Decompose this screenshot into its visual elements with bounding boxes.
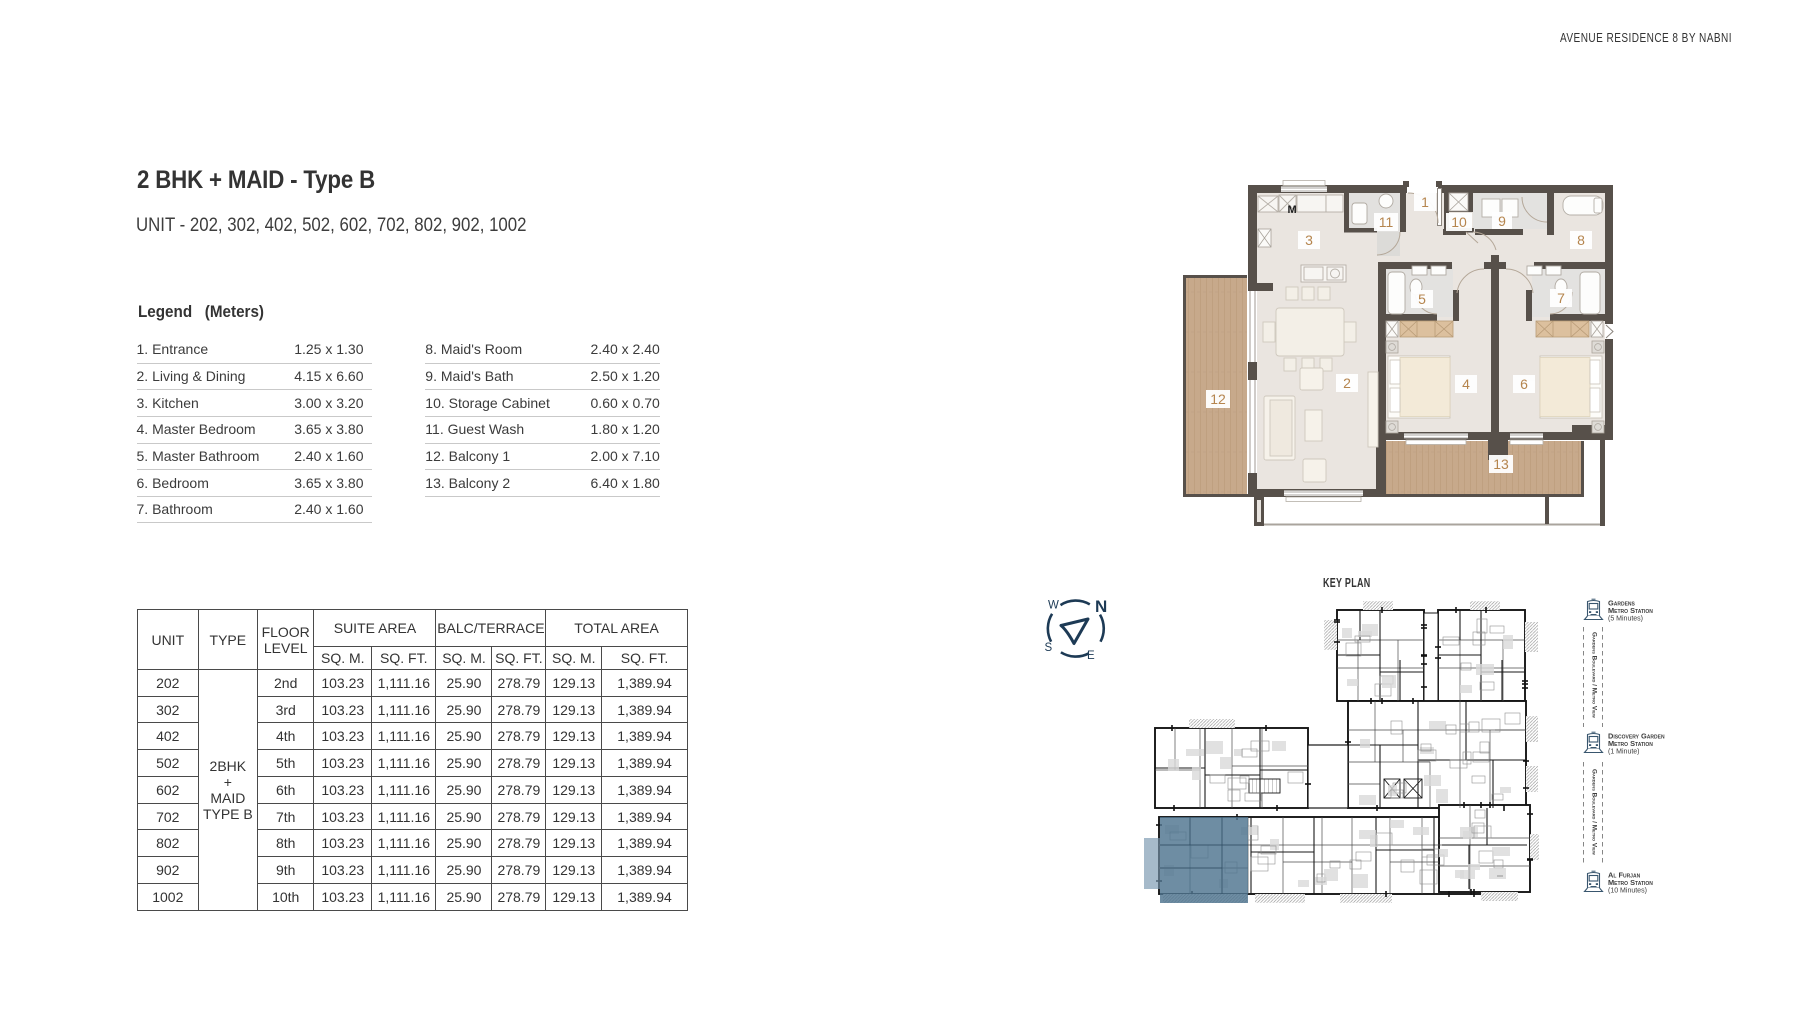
- svg-text:W: W: [1048, 600, 1059, 612]
- svg-text:11: 11: [1379, 214, 1394, 230]
- svg-text:Gardens Boulevard / Metro View: Gardens Boulevard / Metro View: [1591, 769, 1598, 855]
- svg-text:6: 6: [1520, 376, 1528, 392]
- svg-text:2: 2: [1343, 375, 1351, 391]
- svg-text:7: 7: [1557, 290, 1565, 306]
- svg-text:13: 13: [1493, 456, 1509, 472]
- svg-text:N: N: [1095, 597, 1107, 616]
- svg-text:(5 Minutes): (5 Minutes): [1608, 616, 1643, 623]
- svg-text:5: 5: [1418, 291, 1426, 307]
- svg-text:4: 4: [1462, 376, 1470, 392]
- svg-text:10: 10: [1451, 214, 1467, 230]
- svg-text:Metro Station: Metro Station: [1608, 739, 1653, 748]
- svg-text:Gardens Boulevard / Metro View: Gardens Boulevard / Metro View: [1591, 632, 1598, 718]
- svg-text:1: 1: [1421, 194, 1429, 210]
- svg-text:S: S: [1045, 642, 1053, 654]
- svg-text:12: 12: [1210, 391, 1226, 407]
- svg-text:(10 Minutes): (10 Minutes): [1608, 888, 1647, 895]
- svg-text:Metro Station: Metro Station: [1608, 606, 1653, 615]
- svg-text:3: 3: [1305, 232, 1313, 248]
- svg-text:9: 9: [1498, 213, 1506, 229]
- svg-text:M: M: [1288, 204, 1297, 216]
- svg-text:E: E: [1087, 650, 1095, 662]
- svg-text:Metro Station: Metro Station: [1608, 878, 1653, 887]
- svg-text:8: 8: [1577, 232, 1585, 248]
- svg-text:(1 Minute): (1 Minute): [1608, 749, 1640, 756]
